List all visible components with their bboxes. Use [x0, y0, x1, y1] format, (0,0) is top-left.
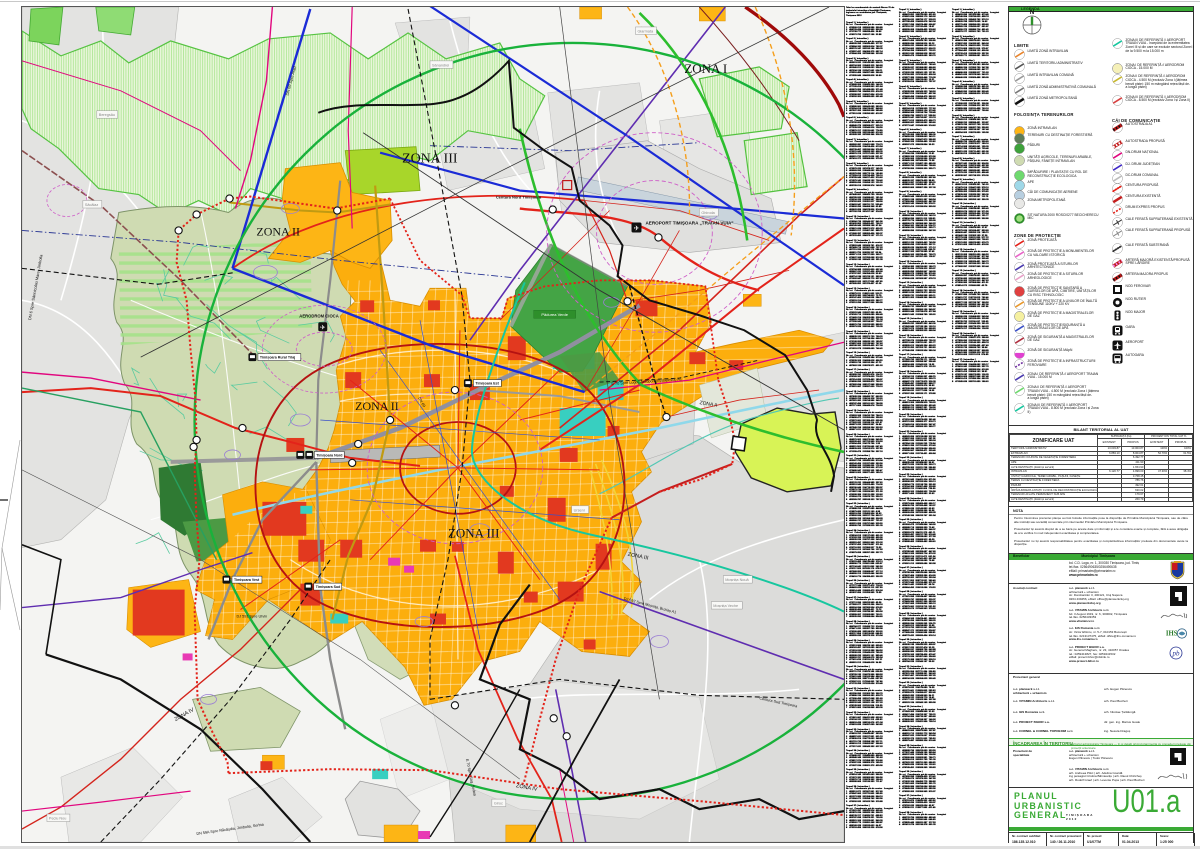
svg-text:Timișoara Nord: Timișoara Nord	[316, 453, 342, 457]
svg-text:Peciu Nou: Peciu Nou	[49, 817, 66, 821]
svg-text:ZONA II: ZONA II	[355, 399, 399, 413]
svg-text:Pădurea Verde: Pădurea Verde	[541, 312, 568, 317]
svg-text:Sânandrei: Sânandrei	[432, 63, 449, 67]
svg-text:IHS: IHS	[1166, 631, 1178, 638]
svg-text:Timișoara Vest: Timișoara Vest	[234, 578, 260, 582]
svg-text:Giarmata: Giarmata	[638, 29, 654, 33]
svg-text:Ghiroda: Ghiroda	[701, 211, 715, 215]
svg-text:ZONA II: ZONA II	[256, 224, 300, 238]
svg-text:Timișoara Rural Triaj: Timișoara Rural Triaj	[260, 356, 295, 360]
svg-text:Giroc: Giroc	[494, 802, 503, 806]
svg-text:DJ 591 Spre Utvin: DJ 591 Spre Utvin	[236, 615, 267, 619]
svg-text:✈: ✈	[320, 325, 325, 332]
svg-text:ZONA III: ZONA III	[402, 152, 458, 167]
svg-text:ZONA III: ZONA III	[448, 526, 499, 541]
svg-text:Săcălaz: Săcălaz	[85, 203, 99, 207]
svg-text:Moșnița Veche: Moșnița Veche	[713, 604, 738, 608]
svg-text:✈: ✈	[634, 225, 640, 232]
svg-text:AERODROM CIOCA: AERODROM CIOCA	[299, 313, 338, 318]
svg-text:Urseni: Urseni	[574, 508, 585, 512]
svg-text:Timișoara Sud: Timișoara Sud	[316, 585, 341, 589]
svg-text:Beregsău: Beregsău	[99, 113, 115, 117]
svg-text:Timișoara Est: Timișoara Est	[475, 382, 499, 386]
svg-text:ZONA I: ZONA I	[684, 61, 727, 76]
svg-text:Centura Nord Timișoara: Centura Nord Timișoara	[496, 195, 542, 200]
svg-text:pb: pb	[1172, 650, 1181, 658]
svg-text:Moșnița Nouă: Moșnița Nouă	[725, 578, 749, 582]
